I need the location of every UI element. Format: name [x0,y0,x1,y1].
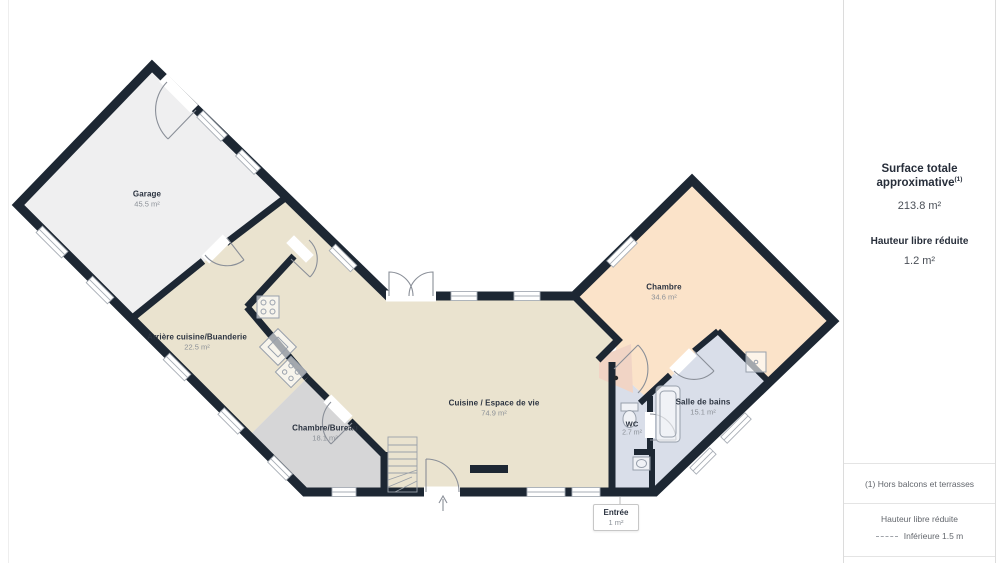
washbasin-icon [633,457,650,470]
bathtub-icon [656,386,680,442]
reduced-height-value: 1.2 m² [844,255,995,267]
legend-section: Hauteur libre réduite Inférieure 1.5 m [844,503,995,557]
room-floors [18,66,833,492]
entree-callout: Entrée 1 m² [593,504,639,531]
floorplan-svg [0,0,843,563]
floorplan-page: Garage 45.5 m² Arrière cuisine/Buanderie… [0,0,1000,563]
kitchen-island [470,465,508,473]
legend-title: Hauteur libre réduite [844,514,995,524]
total-surface-title: Surface totale approximative(1) [844,162,995,191]
dashed-line-icon [876,536,898,537]
footnote-text: (1) Hors balcons et terrasses [844,463,995,503]
surface-summary: Surface totale approximative(1) 213.8 m²… [844,0,995,267]
floorplan-canvas: Garage 45.5 m² Arrière cuisine/Buanderie… [0,0,843,563]
stove-icon [257,296,279,318]
legend-value: Inférieure 1.5 m [904,531,964,541]
footnote-marker: (1) [955,177,963,184]
summary-sidebar: Surface totale approximative(1) 213.8 m²… [843,0,996,563]
water-heater-icon [746,352,766,372]
total-surface-value: 213.8 m² [844,200,995,212]
entrance-arrow-icon [439,496,447,511]
reduced-height-title: Hauteur libre réduite [844,236,995,247]
legend-row: Inférieure 1.5 m [844,531,995,541]
entree-dot [614,376,618,380]
